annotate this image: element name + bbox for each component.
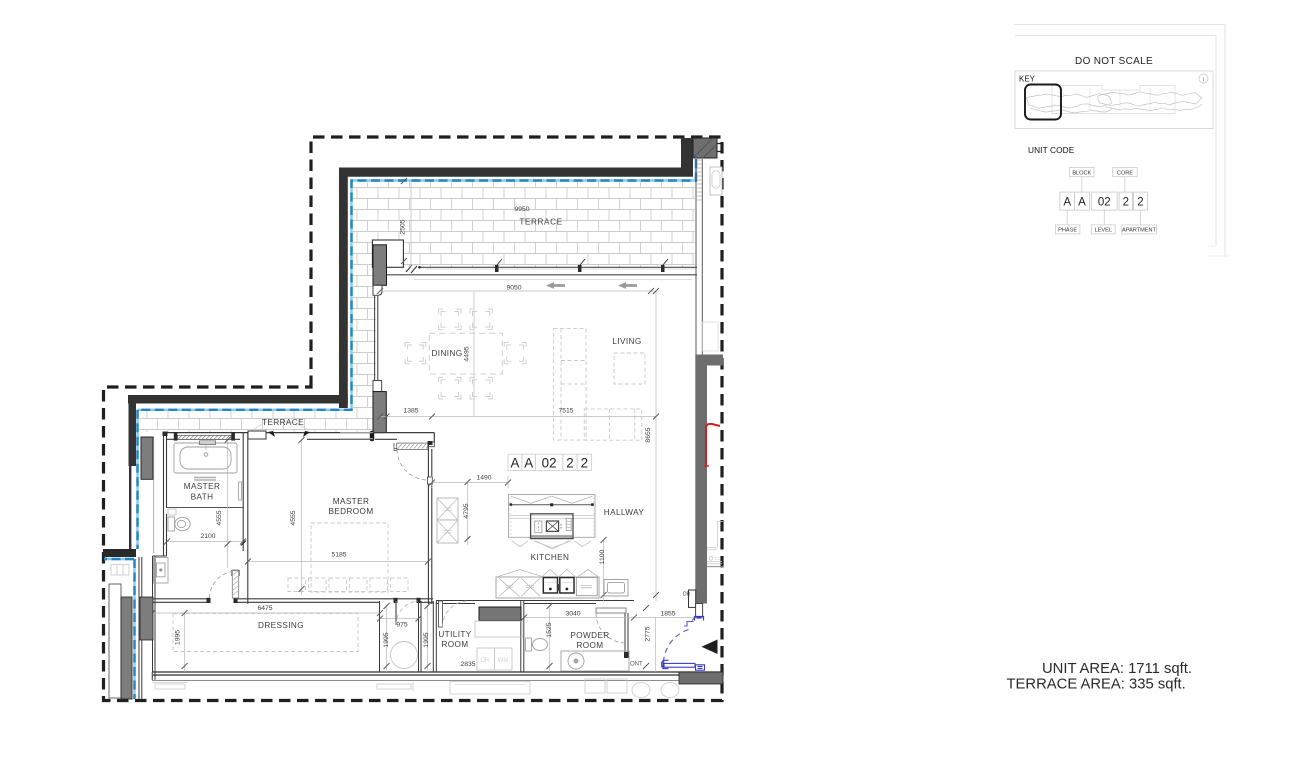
svg-text:CORE: CORE xyxy=(1117,171,1133,177)
svg-text:7515: 7515 xyxy=(558,408,573,415)
svg-text:A: A xyxy=(1078,196,1086,208)
svg-text:6475: 6475 xyxy=(257,605,272,612)
svg-text:TERRACE: TERRACE xyxy=(519,218,562,227)
svg-text:A: A xyxy=(511,455,520,470)
svg-text:9950: 9950 xyxy=(514,206,529,213)
svg-text:PHASE: PHASE xyxy=(1058,228,1077,234)
svg-text:DR: DR xyxy=(481,658,490,664)
svg-text:DO NOT SCALE: DO NOT SCALE xyxy=(1075,56,1153,67)
svg-text:DRESSING: DRESSING xyxy=(258,621,304,630)
svg-text:02: 02 xyxy=(1098,196,1111,208)
svg-text:BEDROOM: BEDROOM xyxy=(328,507,373,516)
svg-text:5185: 5185 xyxy=(331,552,346,559)
svg-text:1385: 1385 xyxy=(403,408,418,415)
svg-text:4795: 4795 xyxy=(463,503,470,518)
svg-text:KEY: KEY xyxy=(1019,75,1036,84)
svg-text:ROOM: ROOM xyxy=(441,640,468,649)
svg-text:2: 2 xyxy=(1123,196,1129,208)
svg-text:DB: DB xyxy=(683,592,691,598)
svg-text:8655: 8655 xyxy=(645,427,652,442)
svg-text:1100: 1100 xyxy=(599,549,606,564)
svg-text:975: 975 xyxy=(396,622,408,629)
svg-text:MASTER: MASTER xyxy=(333,497,370,506)
svg-text:2100: 2100 xyxy=(200,533,215,540)
svg-text:LEVEL: LEVEL xyxy=(1095,228,1112,234)
svg-text:1525: 1525 xyxy=(546,622,553,637)
svg-text:1855: 1855 xyxy=(660,611,675,618)
svg-text:1995: 1995 xyxy=(175,630,182,645)
svg-text:LIVING: LIVING xyxy=(612,337,641,346)
svg-text:1995: 1995 xyxy=(423,632,430,647)
svg-text:4555: 4555 xyxy=(216,510,223,525)
svg-text:TERRACE AREA: 335 sqft.: TERRACE AREA: 335 sqft. xyxy=(1007,677,1186,693)
svg-text:4555: 4555 xyxy=(290,510,297,525)
svg-text:APARTMENT: APARTMENT xyxy=(1122,228,1157,234)
svg-text:ROOM: ROOM xyxy=(576,641,603,650)
svg-text:UTILITY: UTILITY xyxy=(438,630,471,639)
svg-text:A: A xyxy=(524,455,533,470)
svg-text:HALLWAY: HALLWAY xyxy=(604,508,645,517)
svg-text:02: 02 xyxy=(542,455,557,470)
svg-text:1490: 1490 xyxy=(476,475,491,482)
svg-text:2775: 2775 xyxy=(645,626,652,641)
svg-text:9050: 9050 xyxy=(506,285,521,292)
svg-text:2505: 2505 xyxy=(400,219,407,234)
svg-text:DINING: DINING xyxy=(431,349,462,358)
svg-text:KITCHEN: KITCHEN xyxy=(531,553,570,562)
svg-text:POWDER: POWDER xyxy=(570,631,609,640)
svg-text:1995: 1995 xyxy=(383,632,390,647)
svg-text:WM: WM xyxy=(498,658,509,664)
svg-text:BLOCK: BLOCK xyxy=(1072,171,1091,177)
svg-text:ONT: ONT xyxy=(630,662,643,668)
svg-text:2: 2 xyxy=(1137,196,1143,208)
svg-text:2: 2 xyxy=(566,455,573,470)
svg-text:A: A xyxy=(1063,196,1071,208)
svg-text:3040: 3040 xyxy=(565,611,580,618)
svg-text:2: 2 xyxy=(581,455,588,470)
svg-text:i: i xyxy=(1203,77,1204,83)
svg-text:4495: 4495 xyxy=(463,346,470,361)
svg-text:UNIT AREA: 1711 sqft.: UNIT AREA: 1711 sqft. xyxy=(1042,661,1192,677)
svg-text:BATH: BATH xyxy=(191,493,214,502)
svg-text:MASTER: MASTER xyxy=(184,482,221,491)
svg-text:UNIT CODE: UNIT CODE xyxy=(1028,145,1075,155)
svg-text:TERRACE: TERRACE xyxy=(262,418,304,427)
svg-text:2835: 2835 xyxy=(460,661,475,668)
